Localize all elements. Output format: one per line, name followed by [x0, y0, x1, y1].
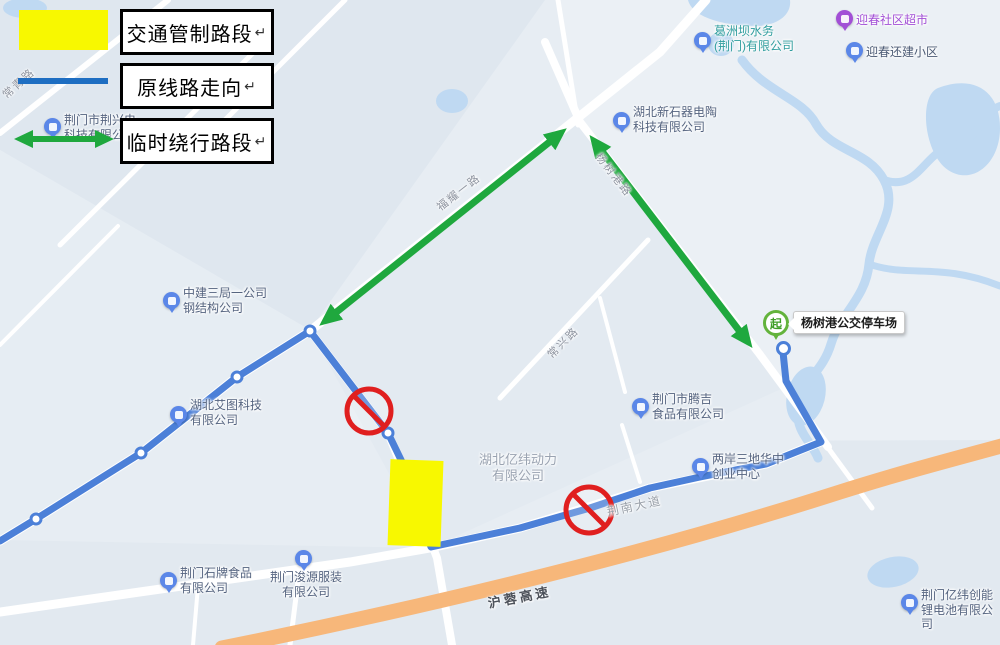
poi-pin-icon [692, 458, 709, 475]
bus-depot-tooltip: 杨树港公交停车场 [793, 311, 905, 334]
poi-yingchun-estate: 迎春还建小区 [866, 45, 938, 60]
poi-yingchun-shop: 迎春社区超市 [856, 13, 928, 28]
poi-aitu: 湖北艾图科技 有限公司 [190, 398, 262, 427]
route-start-pin: 起 [763, 310, 789, 336]
poi-pin-icon [836, 10, 853, 27]
poi-pin-icon [632, 398, 649, 415]
route-start-dot [776, 341, 791, 356]
poi-chuangneng: 荆门亿纬创能 锂电池有限公司 [921, 588, 1000, 632]
poi-shipai: 荆门石牌食品 有限公司 [180, 566, 252, 595]
poi-pin-icon [160, 572, 177, 589]
control-zone [388, 459, 444, 547]
poi-xinshiqi: 湖北新石器电陶 科技有限公司 [633, 105, 717, 134]
legend-yellow-swatch [19, 10, 108, 50]
legend-blue-line [18, 78, 108, 84]
legend-label: 原线路走向 [137, 72, 242, 101]
poi-pin-icon [901, 594, 918, 611]
poi-liangan: 两岸三地华中 创业中心 [712, 452, 784, 481]
legend-green-arrow-icon [12, 127, 116, 151]
legend-label: 交通管制路段 [127, 18, 253, 47]
poi-tengji: 荆门市腾吉 食品有限公司 [652, 392, 724, 421]
return-mark: ↵ [244, 78, 257, 95]
poi-zhongjian: 中建三局一公司 钢结构公司 [183, 286, 267, 315]
legend-item-control: 交通管制路段↵ [120, 9, 274, 55]
poi-pin-icon [613, 112, 630, 129]
poi-pin-icon [170, 406, 187, 423]
legend-label: 临时绕行路段 [127, 127, 253, 156]
return-mark: ↵ [255, 133, 268, 150]
legend-item-detour: 临时绕行路段↵ [120, 118, 274, 164]
poi-gezhouba: 葛洲坝水务 (荆门)有限公司 [714, 24, 794, 53]
poi-pin-icon [295, 550, 312, 567]
poi-junyuan: 荆门浚源服装 有限公司 [258, 570, 354, 599]
poi-pin-icon [163, 292, 180, 309]
poi-pin-icon [846, 42, 863, 59]
legend-item-original: 原线路走向↵ [120, 63, 274, 109]
return-mark: ↵ [255, 24, 268, 41]
detour-notice-map: 常青路 福耀一路 杨树港路 常兴路 荆南大道 沪蓉高速 荆门市荆兴电 科技有限公… [0, 0, 1000, 645]
poi-pin-icon [694, 32, 711, 49]
poi-yiwei-power: 湖北亿纬动力 有限公司 [463, 452, 573, 484]
